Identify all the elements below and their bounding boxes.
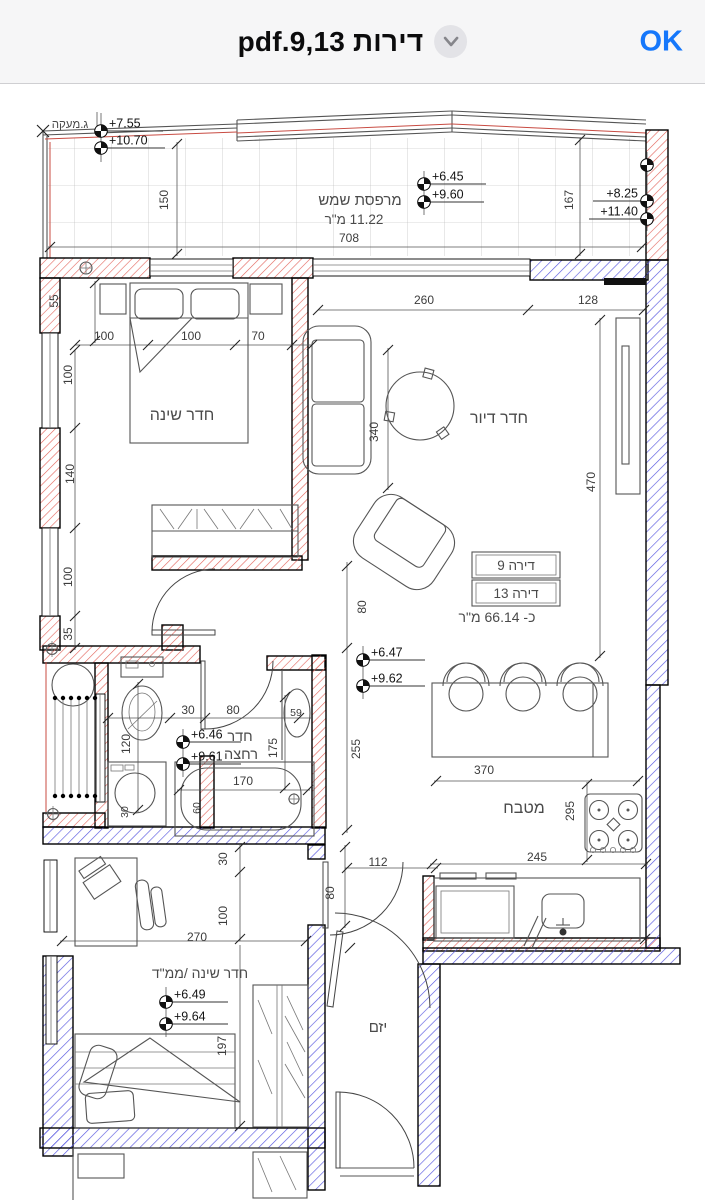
dim-label: 59 <box>290 707 302 719</box>
title-bar: דירות 9,13.pdf OK <box>0 0 705 84</box>
level-label: +9.64 <box>174 1010 206 1024</box>
dim-label: 100 <box>94 329 114 343</box>
dim-label: 80 <box>355 600 369 614</box>
dim-label: 30 <box>181 703 195 717</box>
room-label: ‫חדר שינה <box>150 407 215 424</box>
dim-label: 80 <box>226 703 240 717</box>
chevron-down-icon[interactable] <box>434 25 467 58</box>
dim-label: 140 <box>63 464 77 484</box>
level-marker: +9.62 <box>357 672 425 693</box>
level-label: +6.45 <box>432 170 464 184</box>
room-label: ‫חדר דיור <box>470 410 528 427</box>
floor-plan: ‫ג.מעקה150‫מרפסת שמש‫11.22 מ"ר7081675510… <box>0 84 705 1200</box>
level-marker: +9.64 <box>160 1010 228 1031</box>
room-label: ‫חדר <box>227 729 252 745</box>
dim-label: 112 <box>368 855 387 869</box>
level-label: +9.61 <box>191 750 223 764</box>
dim-label: 100 <box>181 329 201 343</box>
level-label: +7.55 <box>109 117 141 131</box>
room-label: ‫רחצה <box>224 747 258 763</box>
dim-label: 30 <box>119 806 131 818</box>
dim-label: 470 <box>584 472 598 492</box>
dim-label: 370 <box>474 763 494 777</box>
document-title-button[interactable]: דירות 9,13.pdf <box>238 0 468 83</box>
dim-label: 55 <box>47 294 61 308</box>
pdf-viewer[interactable]: ‫ג.מעקה150‫מרפסת שמש‫11.22 מ"ר7081675510… <box>0 84 705 1200</box>
furniture <box>44 262 646 1200</box>
dim-label: 245 <box>527 850 547 864</box>
dim-label: 60 <box>191 802 203 814</box>
level-label: +8.25 <box>606 187 638 201</box>
level-label: +9.62 <box>371 672 403 686</box>
document-title: דירות 9,13.pdf <box>238 26 424 58</box>
dim-label: 260 <box>414 293 434 307</box>
dim-label: 270 <box>187 930 207 944</box>
room-label: ‫דירה 13 <box>493 586 539 601</box>
dim-label: 170 <box>233 774 253 788</box>
level-label: +9.60 <box>432 188 464 202</box>
dim-label: 35 <box>61 627 75 641</box>
dim-label: 150 <box>157 190 171 210</box>
room-label: ‫ג.מעקה <box>52 119 89 131</box>
dim-label: 175 <box>266 738 280 758</box>
level-label: +6.47 <box>371 646 403 660</box>
dim-label: 30 <box>216 852 230 866</box>
room-label: ‫11.22 מ"ר <box>325 212 384 227</box>
level-marker: +6.47 <box>357 646 425 667</box>
dim-label: 197 <box>215 1036 229 1056</box>
level-marker: +6.49 <box>160 988 228 1009</box>
ok-button[interactable]: OK <box>640 25 684 58</box>
level-label: +11.40 <box>600 205 638 219</box>
walls-existing <box>40 260 680 1190</box>
level-marker <box>641 159 654 172</box>
dim-label: 120 <box>119 734 133 754</box>
dim-label: 167 <box>562 190 576 210</box>
dim-label: 295 <box>563 801 577 821</box>
room-label: ‫יזם <box>369 1019 388 1036</box>
dim-label: 340 <box>367 422 381 442</box>
dim-label: 128 <box>578 293 598 307</box>
room-label: ‫מטבח <box>503 800 545 817</box>
level-label: +10.70 <box>109 134 148 148</box>
dim-label: 708 <box>339 231 359 245</box>
room-label: ‫כ- 66.14 מ"ר <box>459 609 536 625</box>
dim-label: 80 <box>323 886 337 900</box>
room-label: ‫חדר שינה /ממ"ד <box>152 965 248 981</box>
dim-label: 100 <box>61 567 75 587</box>
level-label: +6.46 <box>191 728 223 742</box>
level-label: +6.49 <box>174 988 206 1002</box>
dim-label: 100 <box>61 365 75 385</box>
dim-label: 70 <box>251 329 265 343</box>
room-label: ‫דירה 9 <box>497 558 535 573</box>
room-label: ‫מרפסת שמש <box>318 192 401 209</box>
dim-label: 255 <box>349 739 363 759</box>
dim-label: 100 <box>216 906 230 926</box>
